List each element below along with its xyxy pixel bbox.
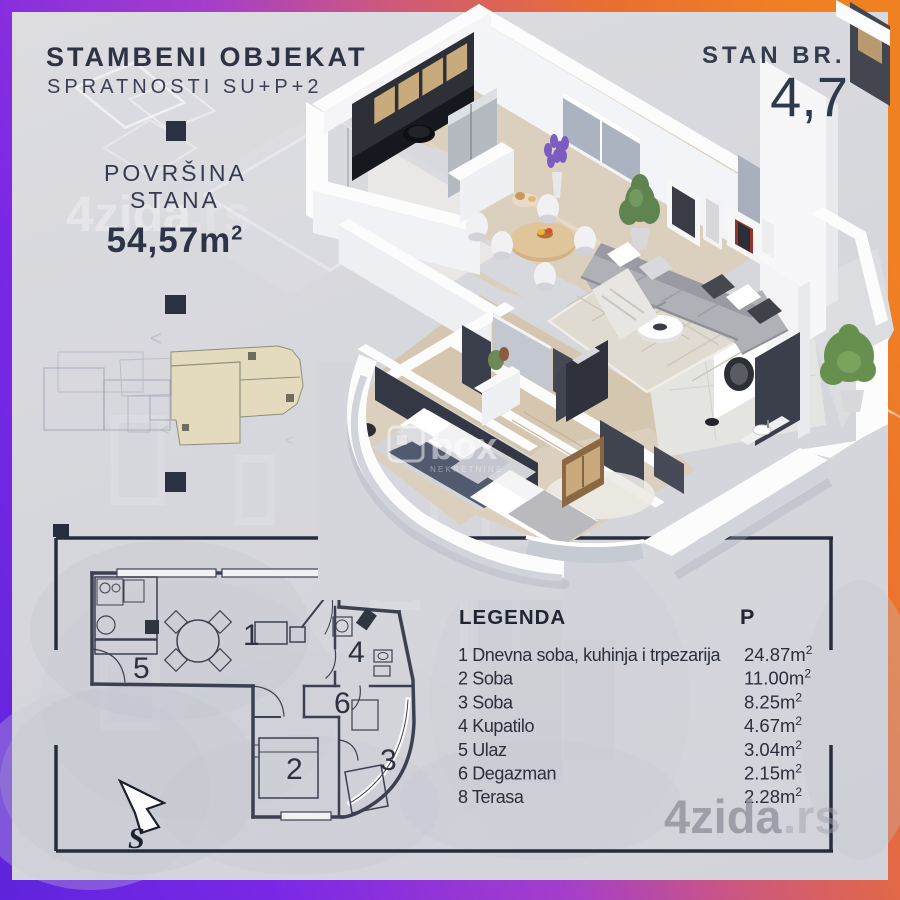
svg-text:8 Terasa: 8 Terasa xyxy=(458,787,525,807)
svg-text:2 Soba: 2 Soba xyxy=(458,669,514,689)
svg-text:3 Soba: 3 Soba xyxy=(458,692,514,712)
svg-text:8.25m2: 8.25m2 xyxy=(744,690,802,712)
svg-text:3.04m2: 3.04m2 xyxy=(744,738,802,760)
svg-text:LEGENDA: LEGENDA xyxy=(459,606,566,629)
svg-text:1 Dnevna soba, kuhinja i trpez: 1 Dnevna soba, kuhinja i trpezarija xyxy=(458,645,722,665)
svg-text:5: 5 xyxy=(133,652,150,685)
svg-text:box: box xyxy=(430,426,498,468)
svg-text:4: 4 xyxy=(348,636,365,669)
svg-text:P: P xyxy=(740,605,754,629)
svg-text:5 Ulaz: 5 Ulaz xyxy=(458,740,507,760)
svg-text:2: 2 xyxy=(286,753,303,786)
svg-text:.rs: .rs xyxy=(783,790,841,843)
svg-text:4zida: 4zida xyxy=(664,790,782,843)
svg-text:3: 3 xyxy=(380,744,397,777)
svg-text:4.67m2: 4.67m2 xyxy=(744,714,802,736)
svg-text:4 Kupatilo: 4 Kupatilo xyxy=(458,716,534,736)
svg-text:S: S xyxy=(128,822,145,855)
svg-text:11.00m2: 11.00m2 xyxy=(744,667,811,689)
svg-text:2.15m2: 2.15m2 xyxy=(744,762,802,784)
svg-text:1: 1 xyxy=(243,619,260,652)
svg-text:<: < xyxy=(285,432,293,448)
svg-text:24.87m2: 24.87m2 xyxy=(744,643,813,665)
svg-text:6: 6 xyxy=(334,687,351,720)
svg-text:<: < xyxy=(150,328,162,350)
svg-text:6 Degazman: 6 Degazman xyxy=(458,764,556,784)
svg-text:N E K R E T N I N E: N E K R E T N I N E xyxy=(430,465,501,474)
